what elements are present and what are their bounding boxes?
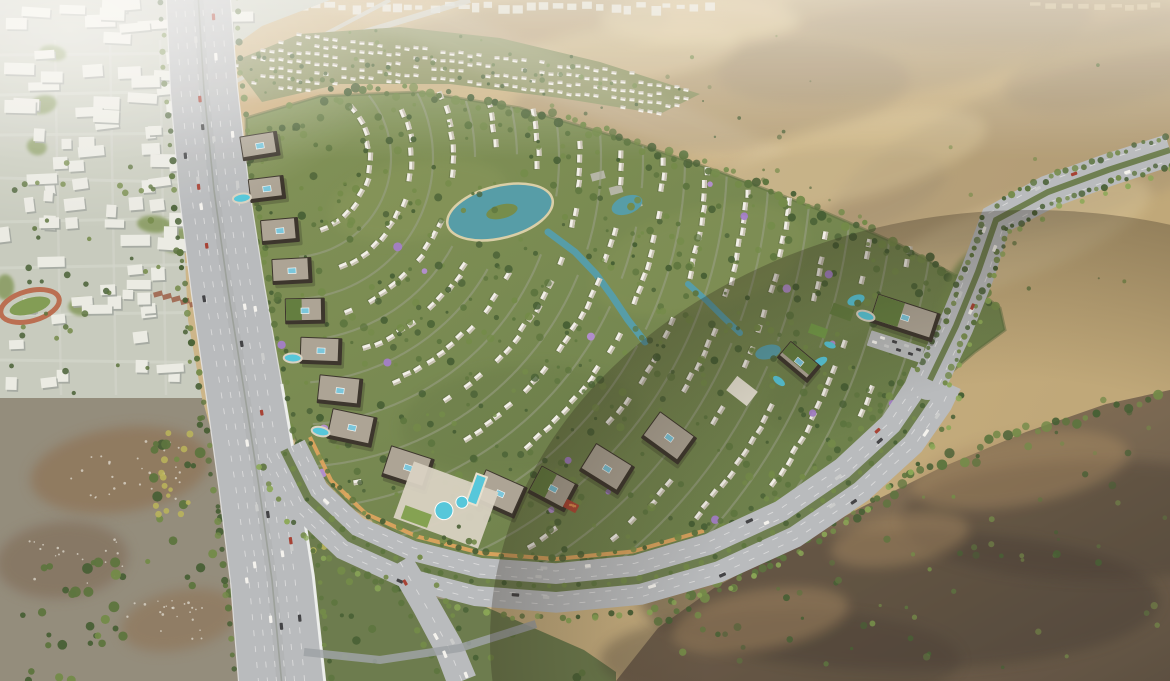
aerial-render-frame (0, 0, 1170, 681)
atmosphere-haze (0, 0, 1170, 681)
scene-canvas (0, 0, 1170, 681)
